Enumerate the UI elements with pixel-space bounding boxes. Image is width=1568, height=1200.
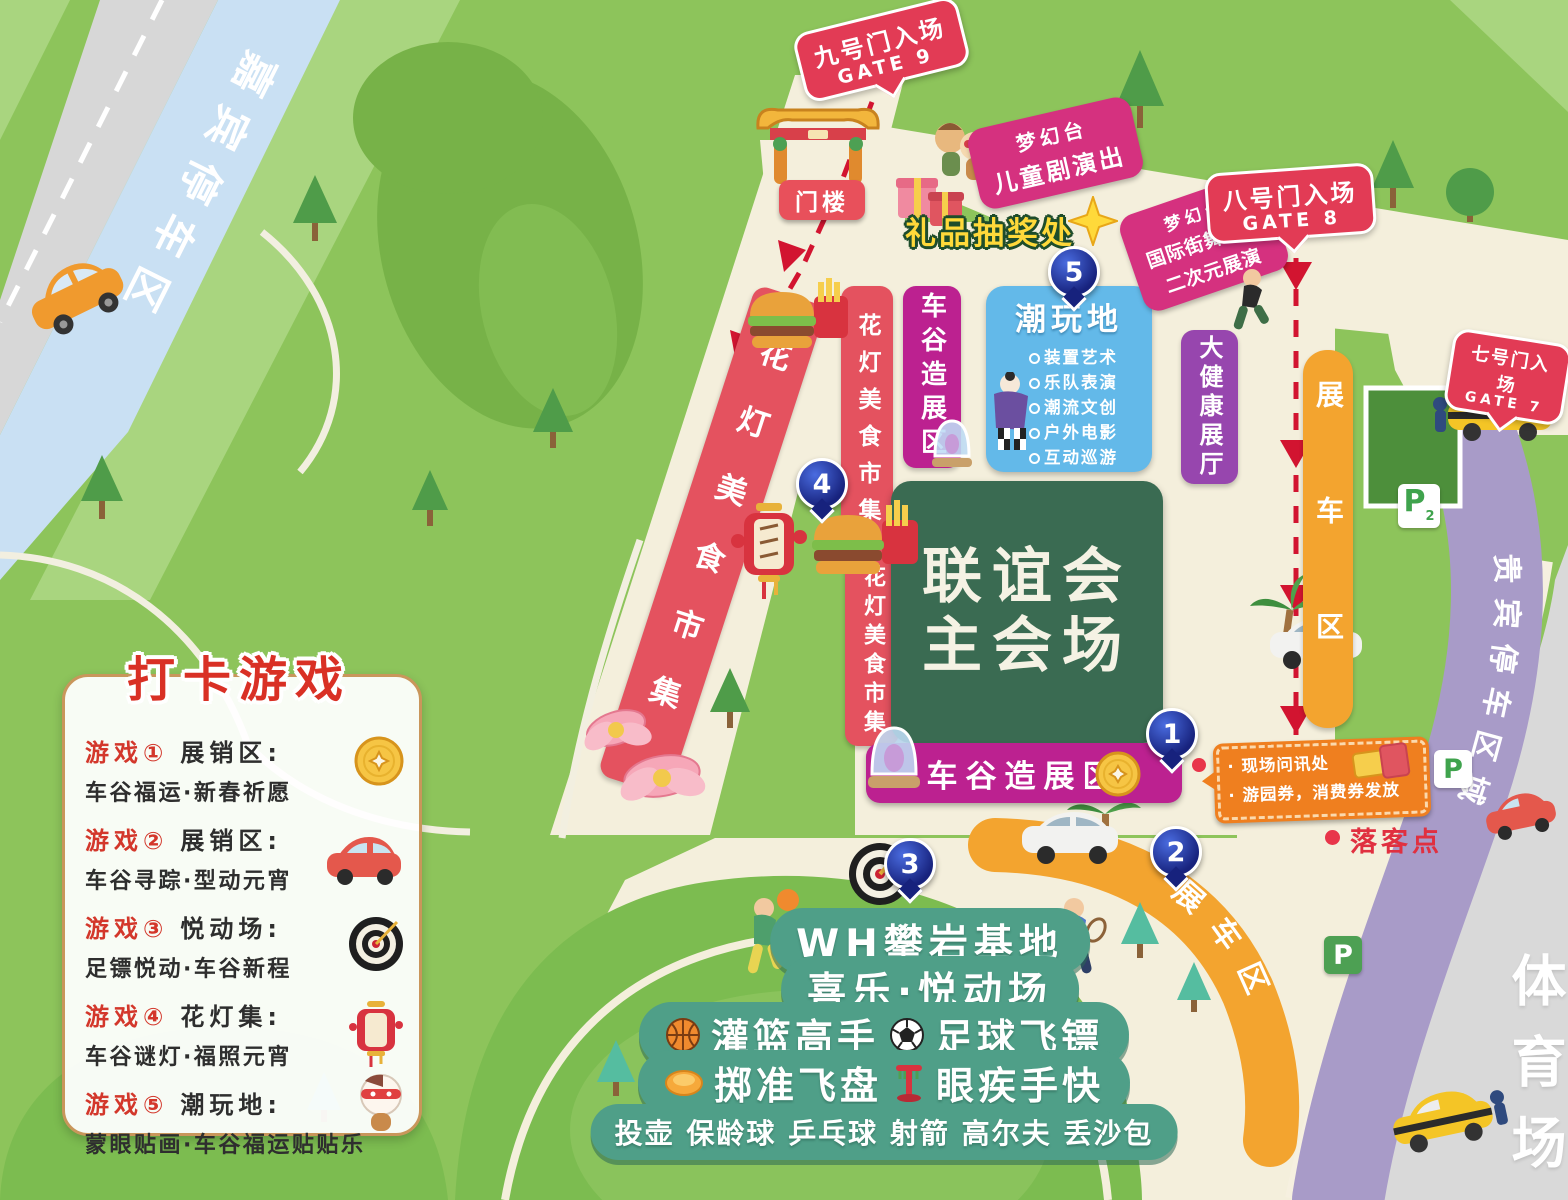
parking-sign-south: P [1324, 936, 1362, 974]
map-pin-1: 1 [1146, 708, 1198, 760]
game3-zone: 悦动场: [180, 915, 282, 943]
frisbee-throw-label: 掷准飞盘 [714, 1055, 882, 1110]
festival-map: 嘉宾停车区 贵宾停车区域 展车区 [0, 0, 1568, 1200]
lotus-icon [566, 694, 714, 814]
frisbee-icon [664, 1067, 704, 1099]
minor-games-label: 投壶 保龄球 乒乓球 射箭 高尔夫 丢沙包 [615, 1112, 1154, 1152]
game5-no: 游戏⑤ [85, 1091, 168, 1119]
trend-item: 互动巡游 [1044, 445, 1152, 470]
dartboard-icon [347, 915, 405, 973]
blindfold-mascot-icon [353, 1071, 411, 1135]
gift-draw-label: 礼品抽奖处 [905, 208, 1075, 253]
car-show-right-strip: 展车区 [1303, 350, 1353, 728]
main-venue-box: 联谊会 主会场 [891, 481, 1163, 743]
game5-zone: 潮玩地: [180, 1091, 282, 1119]
gold-coin-icon [353, 735, 405, 787]
game2-zone: 展销区: [180, 827, 282, 855]
glass-dome-icon [930, 414, 974, 476]
panel-body: 游戏①展销区: 车谷福运·新春祈愿 游戏②展销区: 车谷寻踪·型动元宵 游戏③悦… [65, 677, 419, 1159]
game-item-3: 游戏③悦动场: 足镖悦动·车谷新程 [85, 909, 403, 983]
panel-title: 打卡游戏 [62, 640, 416, 710]
pin-2-number: 2 [1167, 837, 1186, 868]
game1-zone: 展销区: [180, 739, 282, 767]
game4-zone: 花灯集: [180, 1003, 282, 1031]
game-item-5: 游戏⑤潮玩地: 蒙眼贴画·车谷福运贴贴乐 [85, 1085, 403, 1159]
dropoff-dot [1325, 830, 1340, 845]
star-icon [1068, 196, 1118, 246]
burger-fries-icon [748, 278, 854, 368]
trend-item: 户外电影 [1044, 420, 1152, 445]
game-item-4: 游戏④花灯集: 车谷谜灯·福照元宵 [85, 997, 403, 1071]
stadium-label: 体育场 [1494, 952, 1568, 1195]
p2-letter: P [1403, 484, 1425, 519]
health-hall-strip: 大健康展厅 [1181, 330, 1238, 484]
trend-item: 装置艺术 [1044, 345, 1152, 370]
map-pin-5: 5 [1048, 246, 1100, 298]
soccer-ball-icon [889, 1017, 925, 1053]
quick-hands-label: 眼疾手快 [936, 1055, 1104, 1110]
sports-banner-line5: 投壶 保龄球 乒乓球 射箭 高尔夫 丢沙包 [591, 1104, 1178, 1160]
game-item-2: 游戏②展销区: 车谷寻踪·型动元宵 [85, 821, 403, 895]
basketball-icon [665, 1017, 701, 1053]
game3-no: 游戏③ [85, 915, 168, 943]
light-grass-band [0, 0, 70, 140]
chegu-expo-bar-label: 车谷造展区 [927, 751, 1122, 796]
game4-no: 游戏④ [85, 1003, 168, 1031]
trend-mascot-icon [984, 372, 1042, 464]
p2-subscript: 2 [1425, 509, 1434, 524]
gold-coin-icon [1094, 750, 1142, 798]
p-south-letter: P [1333, 940, 1353, 971]
target-stand-icon [892, 1063, 926, 1103]
map-pin-3: 3 [884, 838, 936, 890]
map-pin-2: 2 [1150, 826, 1202, 878]
dancer-icon [1222, 268, 1274, 332]
gate-tower-arch-icon [752, 94, 884, 186]
red-car-icon [327, 835, 405, 887]
checkin-games-panel: 游戏①展销区: 车谷福运·新春祈愿 游戏②展销区: 车谷寻踪·型动元宵 游戏③悦… [62, 674, 422, 1136]
lantern-icon [730, 503, 808, 607]
parking-sign-p2: P2 [1398, 484, 1440, 528]
pin-5-number: 5 [1065, 257, 1084, 288]
info-line1-text: 现场问讯处 [1241, 754, 1329, 776]
glass-dome-icon [866, 718, 922, 804]
trend-item: 乐队表演 [1044, 370, 1152, 395]
gate8-badge: 八号门入场 GATE 8 [1204, 162, 1378, 245]
pin-4-number: 4 [813, 469, 832, 500]
dropoff-label: 落客点 [1350, 820, 1443, 859]
parking-sign-east: P [1434, 750, 1472, 788]
main-venue-line1: 联谊会 [922, 543, 1132, 612]
dark-grass-blob [337, 40, 683, 460]
map-pin-4: 4 [796, 458, 848, 510]
game1-no: 游戏① [85, 739, 168, 767]
pin-1-number: 1 [1163, 719, 1182, 750]
info-location-dot [1192, 758, 1206, 772]
pin-3-number: 3 [901, 849, 920, 880]
light-grass-band [1450, 0, 1568, 112]
trend-item: 潮流文创 [1044, 395, 1152, 420]
game2-no: 游戏② [85, 827, 168, 855]
gate-tower-label: 门楼 [779, 180, 865, 220]
p-east-letter: P [1443, 754, 1463, 785]
lantern-icon [349, 1001, 405, 1069]
main-venue-line2: 主会场 [922, 612, 1132, 681]
game-item-1: 游戏①展销区: 车谷福运·新春祈愿 [85, 733, 403, 807]
